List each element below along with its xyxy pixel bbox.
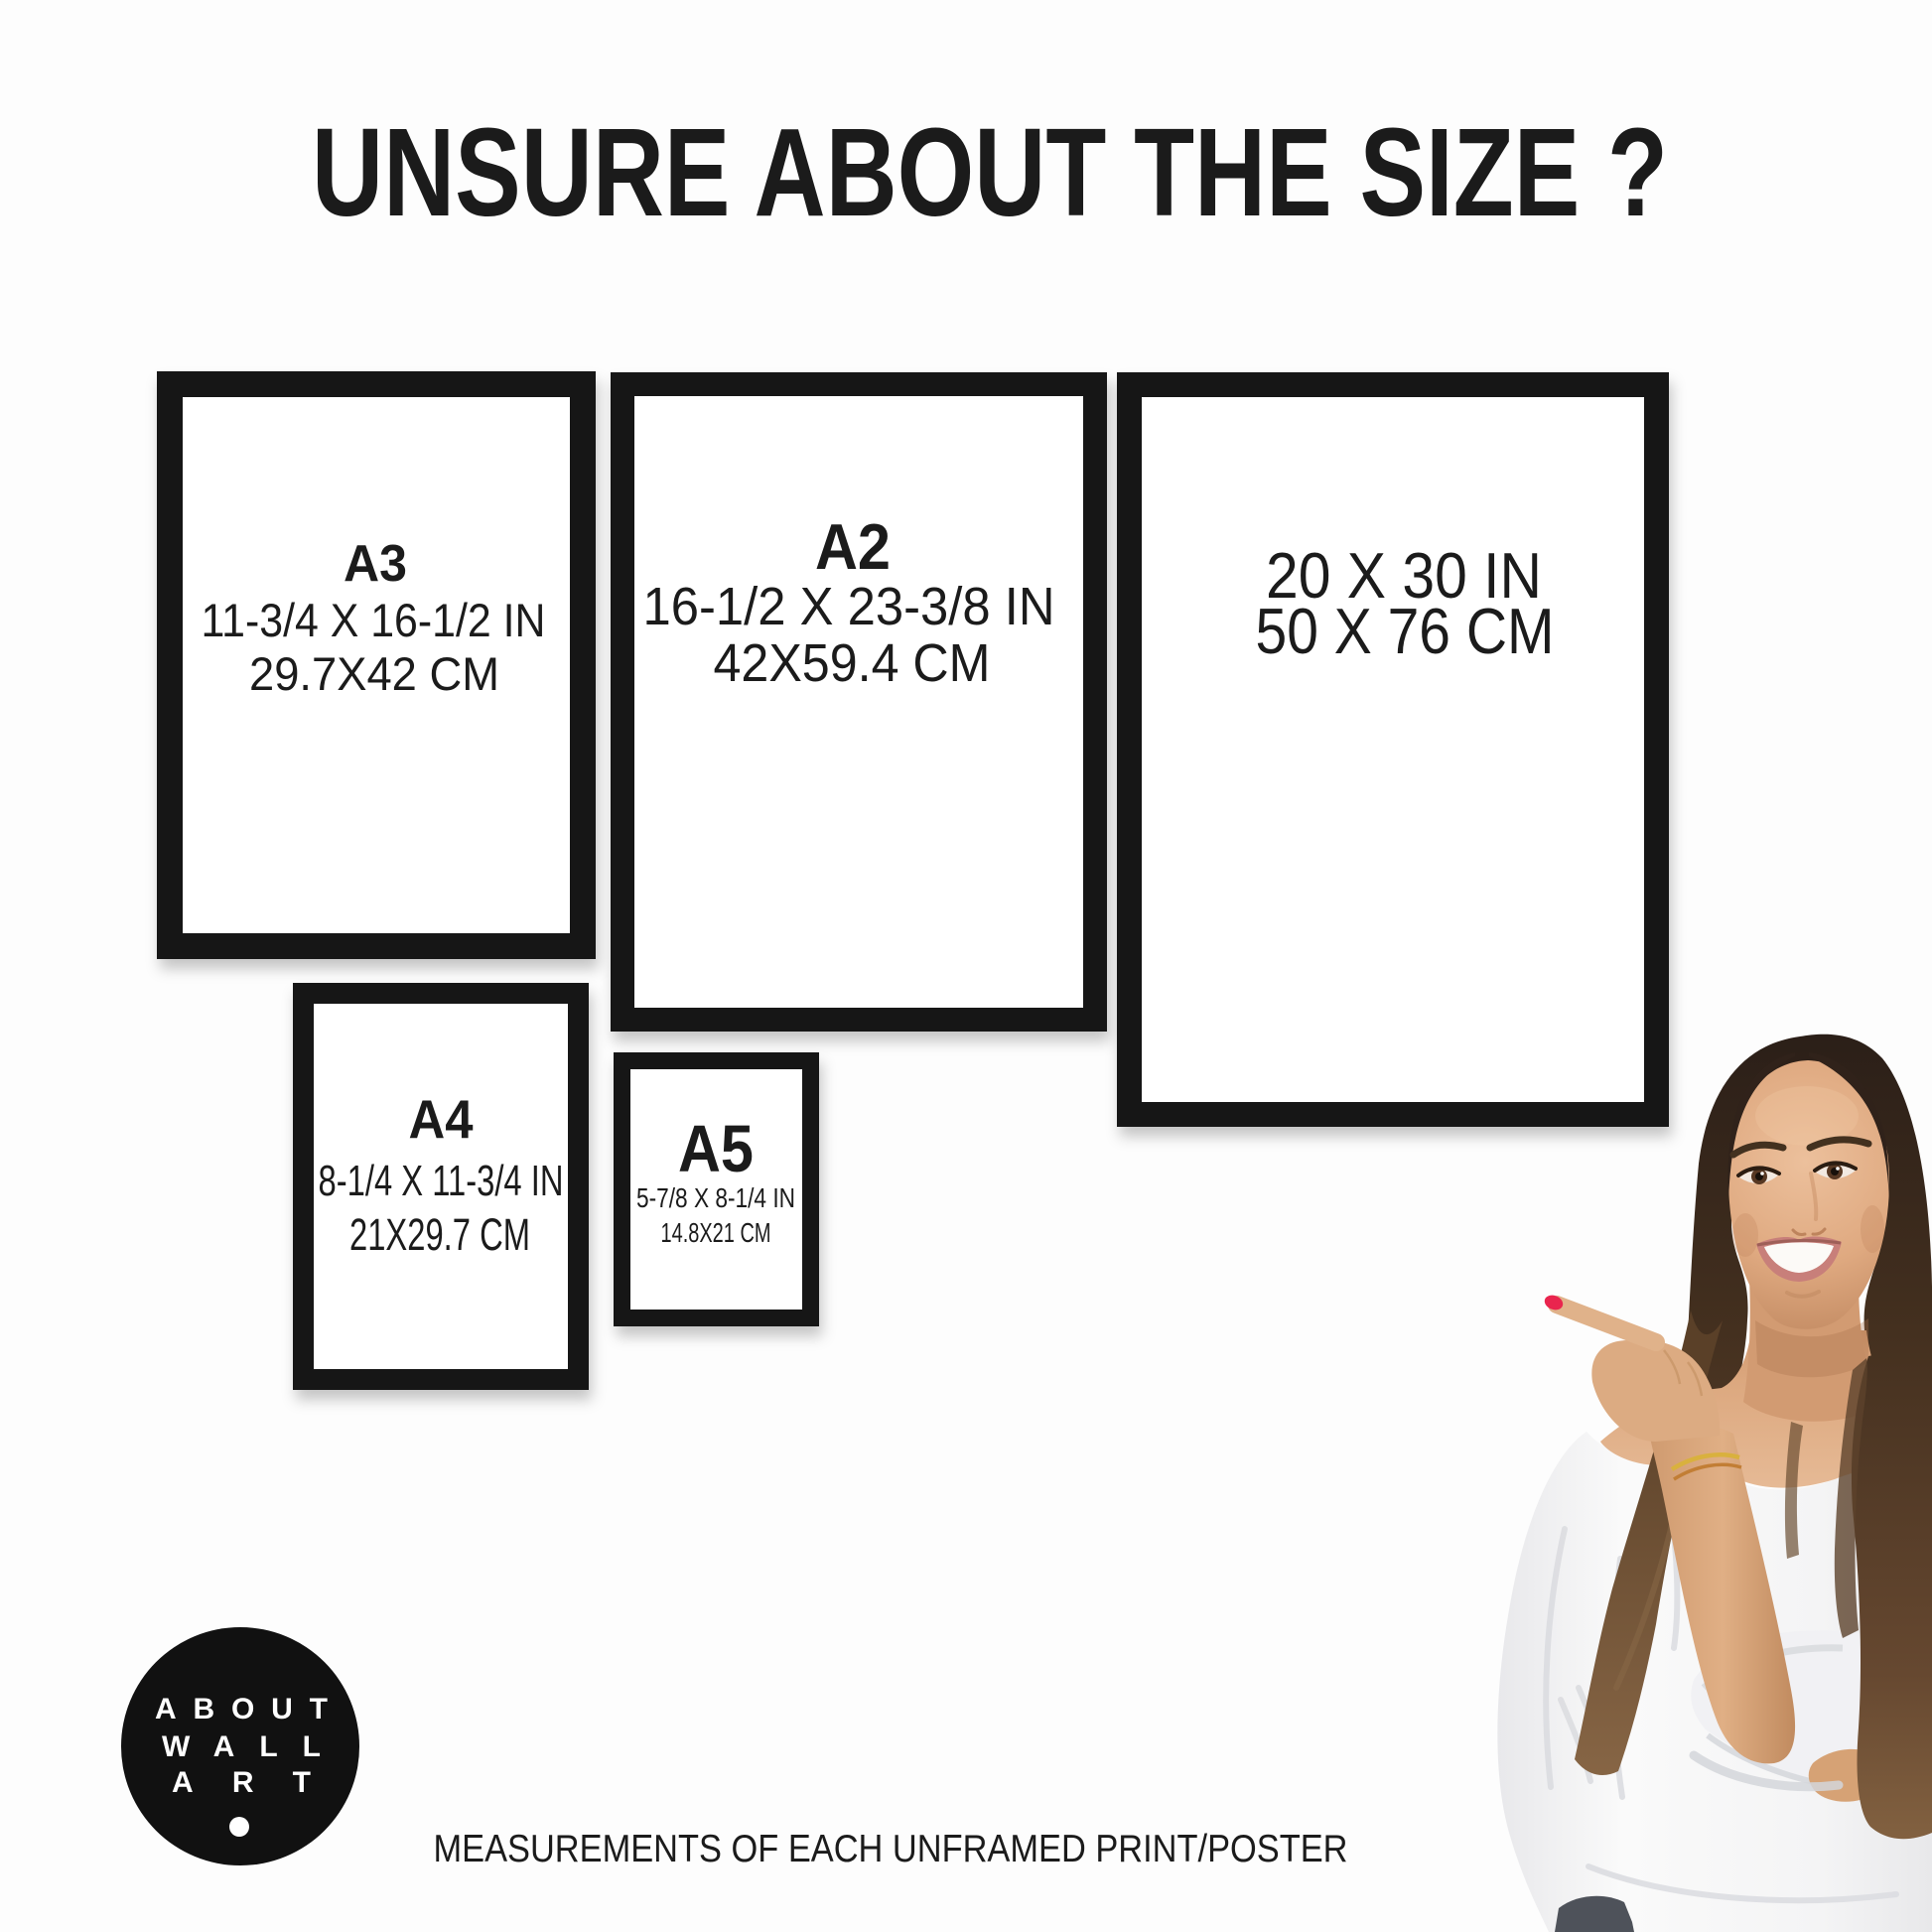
svg-text:A3: A3 <box>344 535 407 593</box>
svg-text:50 X 76 CM: 50 X 76 CM <box>1256 595 1555 667</box>
svg-text:14.8X21 CM: 14.8X21 CM <box>661 1217 771 1248</box>
svg-text:MEASUREMENTS OF EACH UNFRAMED: MEASUREMENTS OF EACH UNFRAMED PRINT/POST… <box>434 1828 1348 1870</box>
svg-text:UNSURE ABOUT THE SIZE ?: UNSURE ABOUT THE SIZE ? <box>312 102 1668 242</box>
svg-text:21X29.7 CM: 21X29.7 CM <box>349 1209 530 1260</box>
svg-text:5-7/8 X 8-1/4 IN: 5-7/8 X 8-1/4 IN <box>636 1182 795 1213</box>
svg-text:A2: A2 <box>815 510 891 583</box>
svg-text:42X59.4 CM: 42X59.4 CM <box>714 633 991 693</box>
svg-text:A4: A4 <box>409 1088 474 1150</box>
svg-text:A5: A5 <box>678 1112 754 1186</box>
svg-text:11-3/4 X 16-1/2 IN: 11-3/4 X 16-1/2 IN <box>202 594 546 646</box>
svg-text:8-1/4 X 11-3/4 IN: 8-1/4 X 11-3/4 IN <box>319 1157 564 1205</box>
svg-text:16-1/2 X 23-3/8 IN: 16-1/2 X 23-3/8 IN <box>643 577 1055 636</box>
svg-text:29.7X42 CM: 29.7X42 CM <box>249 647 499 700</box>
